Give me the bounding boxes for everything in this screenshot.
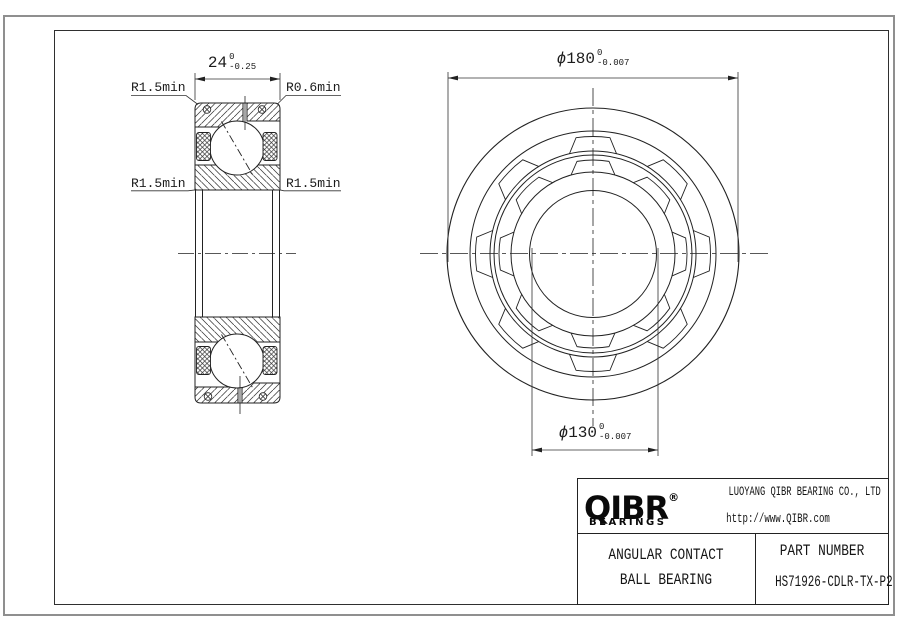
product-type-line2: BALL BEARING [596,571,737,589]
product-type-line1: ANGULAR CONTACT [596,546,737,564]
cage-pocket [633,177,669,213]
outer-diameter-value: ϕ180 [557,51,595,67]
logo-tagline: BEARINGS [589,517,666,528]
bore-diameter-dimension: ϕ130 0 -0.007 [553,425,637,443]
bore-diameter-tolerance: 0 -0.007 [599,423,631,443]
radius-label-mid-left: R1.5min [131,177,186,190]
part-number-label: PART NUMBER [768,542,875,560]
cage-pocket [516,294,552,330]
cage-pocket [647,308,687,348]
registered-trademark-icon: ® [668,491,679,504]
cage-pocket [647,160,687,200]
outer-diameter-dimension: ϕ180 0 -0.007 [551,51,635,69]
outer-diameter-tolerance: 0 -0.007 [597,49,629,69]
cage-pocket [672,232,687,276]
cage-pocket [633,294,669,330]
cage-pocket [516,177,552,213]
bore-diameter-value: ϕ130 [559,425,597,441]
section-view [131,73,341,414]
part-number-value: HS71926-CDLR-TX-P2 [775,573,869,591]
cage-pocket [499,160,539,200]
front-view [420,72,770,456]
company-name: LUOYANG QIBR BEARING CO., LTD [729,485,862,499]
company-website: http://www.QIBR.com [723,511,832,526]
cage-pocket [499,308,539,348]
radius-label-top-right: R0.6min [286,81,341,94]
drawing-sheet: 24 0 -0.25 ϕ180 0 -0.007 ϕ130 0 -0.007 R… [0,0,900,636]
width-dimension-value: 24 [208,55,227,71]
title-block-column-divider [755,533,756,604]
width-dimension-tolerance: 0 -0.25 [229,53,256,73]
width-dimension: 24 0 -0.25 [200,55,264,73]
title-block-row-divider [578,533,888,534]
cage-pocket [499,232,514,276]
radius-label-top-left: R1.5min [131,81,186,94]
radius-label-mid-right: R1.5min [286,177,341,190]
